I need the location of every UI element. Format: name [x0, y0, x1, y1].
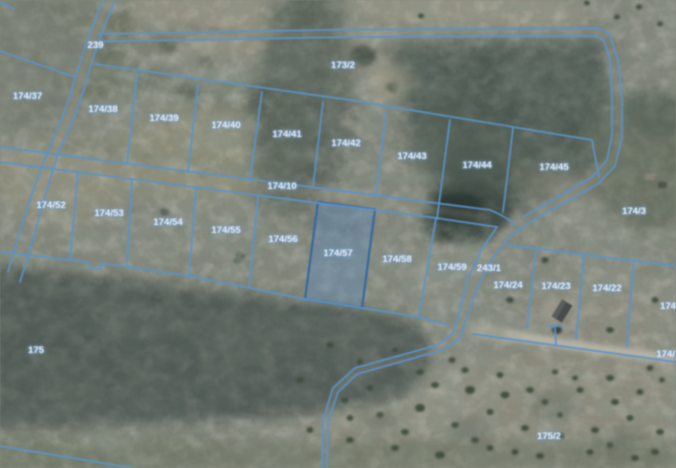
svg-text:174/2: 174/2 [660, 301, 676, 312]
svg-text:174/44: 174/44 [462, 160, 492, 171]
svg-text:174/54: 174/54 [153, 217, 183, 228]
svg-text:174/42: 174/42 [331, 138, 360, 149]
svg-text:174/3: 174/3 [622, 206, 646, 217]
svg-text:174/55: 174/55 [211, 225, 241, 236]
svg-text:239: 239 [87, 40, 103, 51]
svg-text:174/23: 174/23 [541, 281, 570, 292]
svg-text:174/45: 174/45 [539, 162, 569, 173]
svg-text:174/38: 174/38 [88, 104, 118, 115]
svg-text:243/1: 243/1 [477, 263, 502, 274]
svg-text:174/22: 174/22 [592, 283, 621, 294]
svg-text:175/2: 175/2 [537, 431, 561, 442]
svg-text:174/56: 174/56 [268, 234, 297, 245]
svg-text:174/52: 174/52 [36, 200, 65, 211]
svg-text:174/14: 174/14 [656, 349, 676, 360]
svg-text:174/53: 174/53 [94, 208, 123, 219]
svg-text:174/41: 174/41 [272, 129, 302, 140]
svg-text:174/24: 174/24 [493, 280, 523, 291]
svg-text:174/59: 174/59 [437, 262, 466, 273]
svg-text:174/10: 174/10 [267, 181, 296, 192]
svg-text:174/57: 174/57 [323, 248, 352, 259]
svg-text:174/37: 174/37 [13, 91, 42, 102]
svg-text:174/39: 174/39 [149, 113, 178, 124]
svg-text:173/2: 173/2 [331, 60, 355, 71]
svg-text:175: 175 [28, 345, 45, 356]
svg-text:174/58: 174/58 [382, 254, 412, 265]
svg-text:174/43: 174/43 [397, 151, 426, 162]
svg-text:174/40: 174/40 [211, 120, 240, 131]
